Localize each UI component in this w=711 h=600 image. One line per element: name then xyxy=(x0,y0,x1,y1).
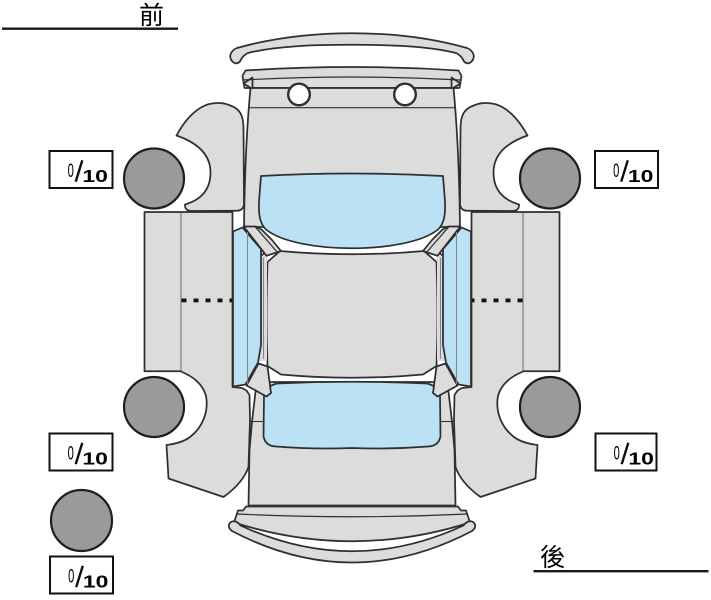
svg-text:0: 0 xyxy=(613,160,619,182)
svg-text:前: 前 xyxy=(139,2,164,30)
svg-text:10: 10 xyxy=(628,166,654,186)
svg-text:10: 10 xyxy=(82,166,108,186)
svg-text:0: 0 xyxy=(68,160,74,182)
svg-text:10: 10 xyxy=(628,448,654,468)
svg-text:0: 0 xyxy=(614,442,620,464)
svg-text:後: 後 xyxy=(540,544,565,572)
svg-text:0: 0 xyxy=(68,442,74,464)
svg-text:10: 10 xyxy=(83,571,109,591)
svg-text:10: 10 xyxy=(82,448,108,468)
svg-text:0: 0 xyxy=(68,565,74,587)
